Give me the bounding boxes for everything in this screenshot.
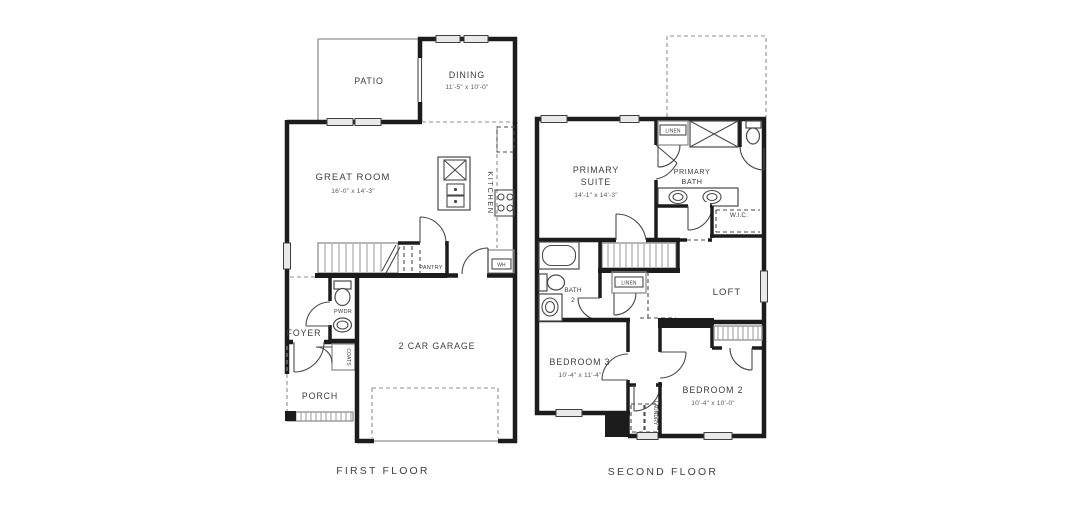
porch-step <box>287 412 353 421</box>
door-arc <box>660 352 686 378</box>
room-dims-bedroom3: 10'-4" x 11'-4" <box>558 372 602 379</box>
stairs-first-floor <box>315 243 447 278</box>
stair-break-line <box>382 245 400 273</box>
closet-wic: W.I.C. <box>710 206 764 238</box>
room-dims-dining: 11'-5" x 10'-0" <box>445 84 489 91</box>
closet-label-wic: W.I.C. <box>730 212 748 219</box>
burner-dot <box>454 200 457 203</box>
window <box>327 119 353 126</box>
room-label-bath2-2: 2 <box>571 297 575 304</box>
stairs-second-floor <box>598 240 680 273</box>
room-label-kitchen: KITCHEN <box>486 171 495 214</box>
room-label-porch: PORCH <box>302 391 338 401</box>
room-label-foyer: FOYER <box>287 328 322 338</box>
room-garage: 2 CAR GARAGE <box>357 277 517 446</box>
toilet-tank-icon <box>334 281 351 289</box>
room-label-bedroom3: BEDROOM 3 <box>550 357 611 367</box>
room-label-dining: DINING <box>449 70 485 80</box>
burner-icon <box>498 205 504 211</box>
window <box>620 116 639 123</box>
window <box>464 36 488 43</box>
powder-door-opening <box>326 301 334 325</box>
window <box>556 410 582 417</box>
burner-icon <box>498 194 504 200</box>
window <box>761 271 768 302</box>
burner-dot <box>454 188 457 191</box>
fridge-icon <box>497 127 514 152</box>
room-porch: PORCH <box>285 346 353 421</box>
first-floor-label: FIRST FLOOR <box>336 465 429 477</box>
closet-label-coats: COATS <box>345 348 351 366</box>
room-label-primary-suite-2: SUITE <box>581 177 611 187</box>
washer-icon <box>631 404 644 432</box>
room-label-loft: LOFT <box>713 287 742 298</box>
porch-hatch <box>291 412 351 421</box>
toilet-tank-icon <box>539 274 547 291</box>
window <box>704 433 732 440</box>
room-label-bedroom2: BEDROOM 2 <box>683 385 744 395</box>
garage-entry <box>447 248 517 280</box>
room-label-garage: 2 CAR GARAGE <box>399 341 476 351</box>
stairs-wall <box>315 273 447 278</box>
garage-slab-dashed <box>372 388 498 438</box>
floor-plan-canvas: PATIO DINING 11'-5" x 10'-0" GREAT ROOM … <box>0 0 1080 515</box>
toilet-icon <box>335 289 350 306</box>
door-arc <box>616 214 646 240</box>
room-label-powder: PWDR <box>334 309 352 315</box>
room-dims-primary-suite: 14'-1" x 14'-3" <box>574 192 618 199</box>
window <box>436 36 460 43</box>
wall-chunk <box>658 318 714 328</box>
wall-notch <box>605 413 629 437</box>
sink-icon <box>334 318 352 332</box>
stairs-outline <box>602 243 676 268</box>
stair-treads <box>325 244 381 272</box>
room-pantry: PANTRY <box>398 217 447 277</box>
room-dining: DINING 11'-5" x 10'-0" <box>417 36 518 125</box>
pantry-shelves <box>404 246 420 274</box>
burner-icon <box>507 194 513 200</box>
room-label-laundry: LAUNDRY <box>652 401 658 426</box>
closet-coats: COATS <box>316 344 355 370</box>
room-loft: LOFT <box>640 236 764 322</box>
window <box>541 116 567 123</box>
second-floor-plan: PRIMARY SUITE 14'-1" x 14'-3" LINEN <box>535 36 768 478</box>
room-label-patio: PATIO <box>354 76 384 86</box>
room-label-primary-bath-1: PRIMARY <box>674 167 711 176</box>
wic-door-opening <box>688 202 710 210</box>
door-arc <box>614 293 636 315</box>
toilet-icon <box>548 275 565 290</box>
roof-outline-dashed <box>667 36 766 117</box>
room-laundry: LAUNDRY <box>628 385 662 432</box>
closet-linen-hall: LINEN <box>612 272 646 315</box>
toilet-tank-icon <box>746 121 761 128</box>
water-heater-closet: WH <box>488 250 514 273</box>
toilet-icon <box>747 128 760 144</box>
room-dims-bedroom2: 10'-4" x 10'-0" <box>691 400 735 407</box>
room-bath2: BATH 2 <box>537 240 630 322</box>
room-label-great-room: GREAT ROOM <box>315 172 390 183</box>
room-label-primary-suite-1: PRIMARY <box>573 165 619 175</box>
door-arc <box>740 147 764 170</box>
front-door-opening <box>293 338 324 347</box>
room-bedroom2: BEDROOM 2 10'-4" x 10'-0" <box>658 318 764 436</box>
room-label-bath2-1: BATH <box>564 287 582 294</box>
window <box>284 243 291 269</box>
window <box>355 119 381 126</box>
burner-icon <box>507 205 513 211</box>
first-floor-plan: PATIO DINING 11'-5" x 10'-0" GREAT ROOM … <box>284 36 518 478</box>
stairs-outline <box>318 243 398 273</box>
room-patio: PATIO <box>318 39 420 122</box>
door-arc <box>316 347 332 363</box>
stair-treads <box>608 244 668 267</box>
floorplan-page: PATIO DINING 11'-5" x 10'-0" GREAT ROOM … <box>0 0 1080 515</box>
window <box>637 433 658 440</box>
closet-shelf-hatch <box>718 326 758 340</box>
closet-label-linen: LINEN <box>665 129 681 135</box>
pantry-door-opening <box>420 239 445 247</box>
door-arc <box>578 298 600 320</box>
door-arc <box>462 248 488 274</box>
room-dims-great-room: 16'-0" x 14'-3" <box>331 188 375 195</box>
closet-label-linen: LINEN <box>621 281 637 287</box>
door-arc <box>730 348 752 370</box>
room-label-primary-bath-2: BATH <box>681 177 702 186</box>
label-water-heater: WH <box>497 263 506 269</box>
porch-post <box>285 411 296 421</box>
room-kitchen: KITCHEN <box>438 122 515 443</box>
second-floor-label: SECOND FLOOR <box>608 466 718 478</box>
room-label-pantry: PANTRY <box>419 265 442 271</box>
